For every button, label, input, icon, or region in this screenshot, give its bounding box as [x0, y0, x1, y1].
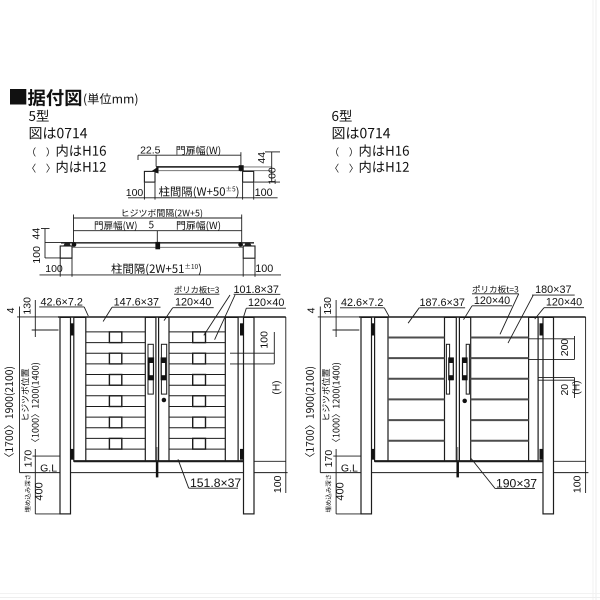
svg-text:120×40: 120×40 — [474, 295, 510, 307]
svg-text:400: 400 — [334, 482, 346, 500]
svg-text:100: 100 — [259, 331, 271, 349]
svg-text:120×40: 120×40 — [248, 297, 284, 309]
svg-text:130: 130 — [21, 297, 33, 315]
svg-text:187.6×37: 187.6×37 — [420, 297, 465, 309]
svg-text:100: 100 — [31, 246, 43, 264]
svg-text:44: 44 — [30, 228, 42, 240]
svg-text:4: 4 — [306, 307, 318, 313]
svg-text:22.5: 22.5 — [140, 144, 161, 156]
svg-text:120×40: 120×40 — [175, 297, 211, 309]
svg-text:120×40: 120×40 — [546, 297, 582, 309]
svg-text:42.6×7.2: 42.6×7.2 — [341, 297, 383, 309]
svg-text:(H): (H) — [571, 380, 582, 394]
svg-text:170: 170 — [323, 450, 335, 468]
svg-text:100: 100 — [572, 475, 584, 493]
svg-text:4: 4 — [5, 307, 17, 313]
svg-text:170: 170 — [22, 450, 34, 468]
svg-text:147.6×37: 147.6×37 — [114, 296, 159, 308]
svg-text:100: 100 — [255, 187, 273, 199]
svg-text:100: 100 — [272, 475, 284, 493]
svg-text:400: 400 — [34, 482, 46, 500]
svg-text:100: 100 — [45, 263, 63, 275]
svg-text:G.L: G.L — [40, 463, 57, 475]
svg-text:100: 100 — [126, 187, 144, 199]
svg-text:151.8×37: 151.8×37 — [190, 476, 241, 490]
svg-text:200: 200 — [559, 339, 571, 357]
svg-text:44: 44 — [256, 152, 268, 164]
svg-text:130: 130 — [322, 297, 334, 315]
svg-text:100: 100 — [255, 263, 273, 275]
svg-text:(H): (H) — [272, 380, 283, 394]
svg-text:190×37: 190×37 — [496, 477, 537, 491]
svg-text:20: 20 — [559, 384, 571, 396]
svg-text:G.L: G.L — [341, 463, 358, 475]
svg-text:100: 100 — [267, 167, 279, 185]
svg-text:180×37: 180×37 — [535, 284, 571, 296]
